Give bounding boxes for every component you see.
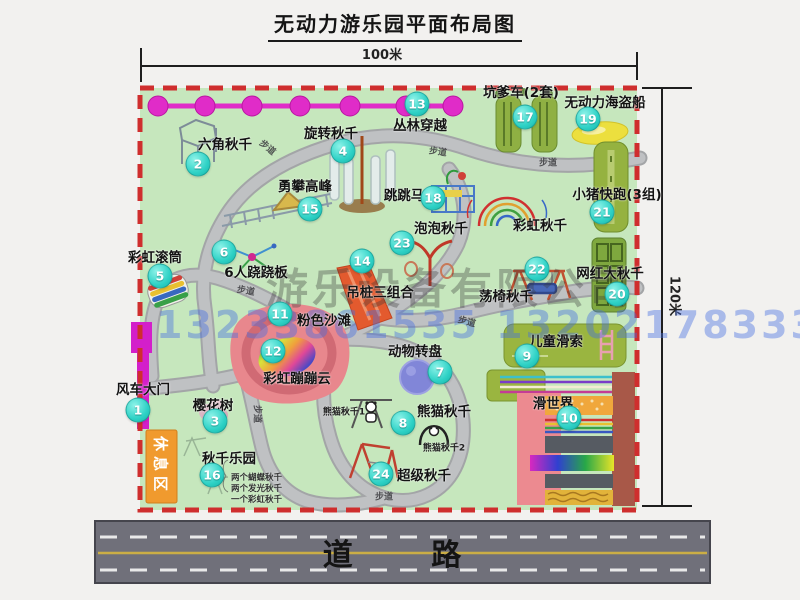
panda-swing-sublabel-1: 熊猫秋千1 — [323, 405, 365, 418]
item-13-label: 丛林穿越 — [393, 114, 447, 134]
item-1-badge: 1 — [126, 398, 151, 423]
park-layout-screenshot: 无动力游乐园平面布局图 100米 120米 游乐设备有限公司 132338615… — [0, 0, 800, 600]
height-dimension-label: 120米 — [667, 276, 686, 316]
item-2-label: 六角秋千 — [198, 133, 252, 153]
item-19-label: 无动力海盗船 — [565, 91, 646, 111]
panda-swing-sublabel-2: 熊猫秋千2 — [423, 441, 465, 454]
page-title: 无动力游乐园平面布局图 — [268, 8, 522, 42]
item-17-label: 坑爹车(2套) — [483, 81, 559, 101]
item-10-badge: 10 — [557, 406, 582, 431]
item-12-badge: 12 — [261, 339, 286, 364]
item-24-label: 超级秋千 — [397, 464, 451, 484]
road-label: 道 路 — [289, 530, 495, 574]
item-14-badge: 14 — [350, 249, 375, 274]
item-18-badge: 18 — [421, 186, 446, 211]
item-9-badge: 9 — [515, 344, 540, 369]
item-20-badge: 20 — [605, 282, 630, 307]
item-5-label: 彩虹滚筒 — [128, 246, 182, 266]
item-22-label: 荡椅秋千 — [479, 285, 533, 305]
item-7-badge: 7 — [428, 360, 453, 385]
item-4-badge: 4 — [331, 139, 356, 164]
item-15-label: 勇攀高峰 — [278, 175, 332, 195]
walkway-label-6: 步道 — [375, 490, 393, 503]
item-11-label: 粉色沙滩 — [297, 309, 351, 329]
item-23-badge: 23 — [390, 231, 415, 256]
item-14-label: 吊桩三组合 — [346, 281, 414, 301]
item-22-badge: 22 — [525, 257, 550, 282]
item-11-badge: 11 — [268, 302, 293, 327]
item-21-badge: 21 — [590, 200, 615, 225]
item-17-badge: 17 — [513, 105, 538, 130]
item-18-label: 跳跳马 — [384, 184, 425, 204]
item-3-badge: 3 — [203, 409, 228, 434]
item-24-badge: 24 — [369, 462, 394, 487]
item-6-label: 6人跷跷板 — [224, 261, 287, 281]
item-2-badge: 2 — [186, 152, 211, 177]
item-1-label: 风车大门 — [116, 378, 170, 398]
item-23-label: 泡泡秋千 — [414, 217, 468, 237]
item-7-label: 动物转盘 — [388, 340, 442, 360]
width-dimension-label: 100米 — [362, 44, 402, 63]
item-19-badge: 19 — [576, 107, 601, 132]
walkway-label-2: 步道 — [428, 143, 448, 158]
walkway-label-5: 步道 — [252, 405, 265, 423]
item-6-badge: 6 — [212, 240, 237, 265]
item-5-badge: 5 — [148, 264, 173, 289]
walkway-label-3: 步道 — [539, 156, 557, 169]
item-21-label: 小猪快跑(3组) — [572, 183, 661, 203]
item-8-label: 熊猫秋千 — [417, 400, 471, 420]
item-20-label: 网红大秋千 — [576, 262, 644, 282]
item-rainbow-swing-label: 彩虹秋千 — [513, 214, 567, 234]
item-15-badge: 15 — [298, 197, 323, 222]
item-16-badge: 16 — [200, 463, 225, 488]
item-8-badge: 8 — [391, 411, 416, 436]
item-12-label: 彩虹蹦蹦云 — [263, 367, 331, 387]
item-13-badge: 13 — [405, 92, 430, 117]
item-4-label: 旋转秋千 — [304, 122, 358, 142]
item-9-label: 儿童滑索 — [529, 330, 583, 350]
rest-area-label: 休息区 — [151, 436, 172, 496]
swing-park-note-3: 一个彩虹秋千 — [231, 493, 282, 505]
